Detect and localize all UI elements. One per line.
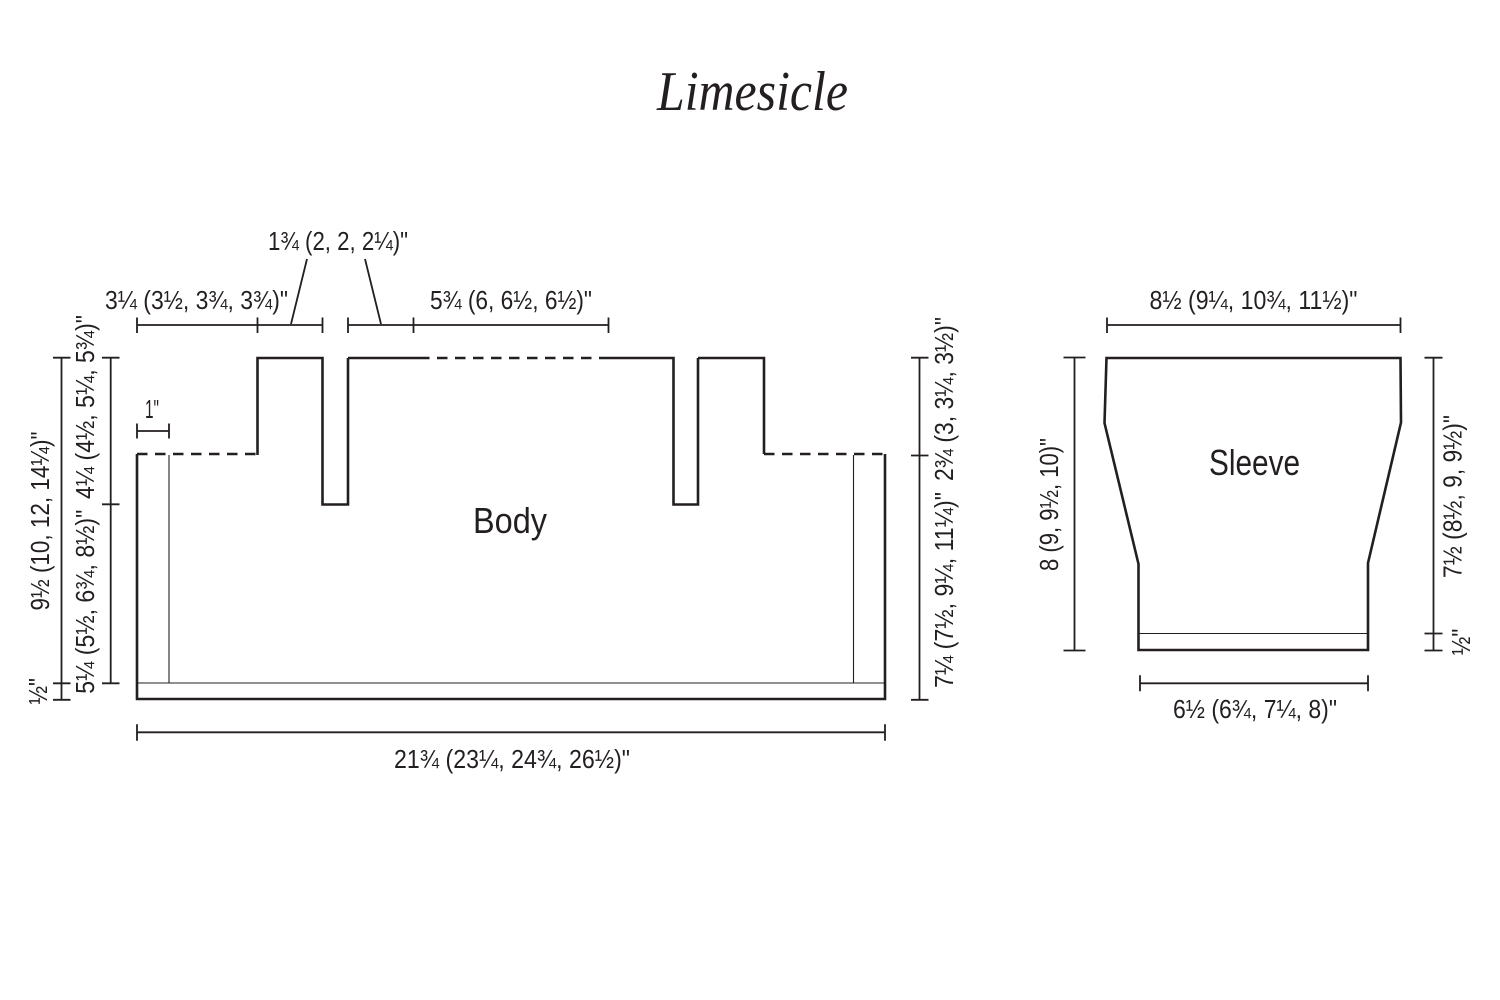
svg-text:5¼ (5½, 6¾, 8½)": 5¼ (5½, 6¾, 8½)": [70, 510, 100, 694]
svg-text:1¾ (2, 2, 2¼)": 1¾ (2, 2, 2¼)": [268, 226, 408, 256]
svg-text:4¼ (4½, 5¼, 5¾)": 4¼ (4½, 5¼, 5¾)": [70, 315, 100, 499]
svg-text:Body: Body: [473, 500, 547, 541]
svg-text:Limesicle: Limesicle: [656, 61, 848, 123]
svg-text:9½ (10, 12, 14¼)": 9½ (10, 12, 14¼)": [25, 432, 55, 611]
svg-text:½": ½": [23, 678, 53, 705]
svg-text:1": 1": [145, 394, 159, 424]
svg-text:6½ (6¾, 7¼, 8)": 6½ (6¾, 7¼, 8)": [1173, 694, 1337, 724]
svg-text:21¾ (23¼, 24¾, 26½)": 21¾ (23¼, 24¾, 26½)": [394, 744, 630, 774]
svg-text:3¼ (3½, 3¾, 3¾)": 3¼ (3½, 3¾, 3¾)": [105, 285, 288, 315]
svg-text:8 (9, 9½, 10)": 8 (9, 9½, 10)": [1034, 438, 1064, 571]
svg-text:½": ½": [1446, 629, 1476, 656]
svg-text:7¼ (7½, 9¼, 11¼)": 7¼ (7½, 9¼, 11¼)": [929, 492, 959, 688]
svg-text:7½ (8½, 9, 9½)": 7½ (8½, 9, 9½)": [1438, 415, 1468, 578]
svg-text:5¾ (6, 6½, 6½)": 5¾ (6, 6½, 6½)": [430, 285, 592, 315]
svg-text:8½ (9¼, 10¾, 11½)": 8½ (9¼, 10¾, 11½)": [1150, 285, 1358, 315]
svg-text:Sleeve: Sleeve: [1209, 442, 1300, 483]
svg-text:2¾ (3, 3¼, 3½)": 2¾ (3, 3¼, 3½)": [929, 317, 959, 481]
